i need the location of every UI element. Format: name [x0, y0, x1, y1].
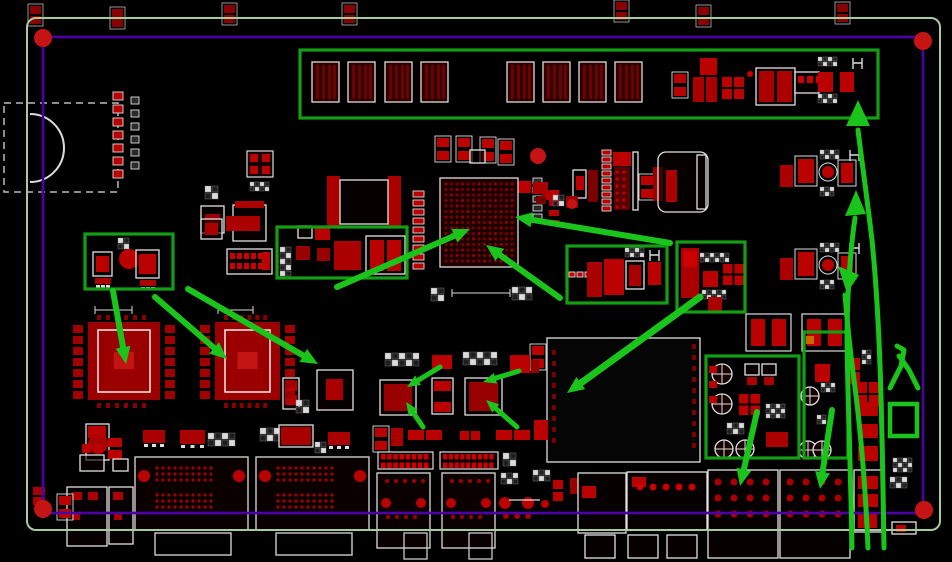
- stripe: [364, 65, 367, 99]
- pin-hole: [450, 479, 454, 483]
- via-grid-cell: [463, 352, 469, 358]
- pad: [734, 77, 744, 87]
- pin-hole: [404, 515, 408, 519]
- red-pad: [840, 72, 854, 92]
- via-grid-cell: [903, 458, 907, 462]
- bga-ball: [472, 221, 475, 224]
- red-pad: [582, 486, 596, 498]
- bga-ball: [461, 183, 464, 186]
- via-grid-cell: [118, 238, 123, 243]
- pad-column-pad: [131, 123, 139, 130]
- bga-ball: [478, 260, 481, 263]
- red-pad: [139, 254, 156, 274]
- pin-top: [263, 315, 267, 320]
- bga-ball: [500, 183, 503, 186]
- pin-hole: [294, 472, 297, 475]
- via-grid-cell: [890, 477, 895, 482]
- pin-hole: [330, 499, 333, 502]
- pad-column-pad: [692, 388, 696, 393]
- red-pad: [496, 430, 512, 440]
- via-grid-cell: [212, 186, 218, 192]
- memory-chip: [312, 62, 339, 102]
- pin-hole: [412, 479, 416, 483]
- bga-ball: [494, 183, 497, 186]
- pad: [250, 154, 258, 162]
- pad-column-pad: [602, 171, 611, 176]
- red-pad: [641, 176, 653, 185]
- qfn-chip: [247, 151, 273, 177]
- pad-column-pad: [413, 218, 424, 224]
- via-grid-cell: [893, 463, 897, 467]
- bga-ball: [450, 205, 453, 208]
- via-grid-cell: [717, 290, 721, 294]
- via-grid-cell: [898, 458, 902, 462]
- stripe: [442, 65, 445, 99]
- bga-ball: [494, 199, 497, 202]
- header-pin: [466, 454, 470, 460]
- pad-column-pad: [552, 394, 556, 399]
- red-pad: [375, 441, 387, 450]
- via-grid-cell: [526, 294, 532, 300]
- via-grid-cell: [722, 295, 726, 299]
- pin-hole: [173, 493, 176, 496]
- mounting-hole: [914, 32, 932, 50]
- via-grid-cell: [826, 388, 830, 392]
- pin-hole: [385, 479, 389, 483]
- via-grid-cell: [625, 253, 629, 257]
- via-grid-cell: [908, 458, 912, 462]
- via-grid-cell: [739, 423, 744, 428]
- pin-left: [73, 380, 83, 388]
- bga-ball: [489, 260, 492, 263]
- red-pad: [806, 336, 814, 344]
- bga-ball: [445, 188, 448, 191]
- pad-column-pad: [108, 450, 122, 459]
- pad-column-pad: [602, 157, 611, 162]
- pin-bottom: [142, 403, 146, 408]
- pin-hole: [288, 493, 291, 496]
- pin-hole: [155, 505, 158, 508]
- bga-ball: [489, 243, 492, 246]
- via-grid-cell: [539, 476, 544, 481]
- red-pad: [534, 420, 548, 440]
- header-pin: [460, 454, 464, 460]
- pin-hole: [312, 505, 315, 508]
- mount-pin: [446, 498, 456, 508]
- pad-column-pad: [413, 209, 424, 215]
- via-grid-cell: [215, 433, 221, 439]
- mount-pin: [416, 498, 426, 508]
- pin-left: [200, 325, 210, 333]
- via-grid-cell: [862, 360, 866, 364]
- via-grid-cell: [406, 353, 412, 359]
- via-grid-cell: [828, 62, 832, 66]
- via-grid-cell: [503, 460, 509, 466]
- pin-bottom: [124, 403, 128, 408]
- bga-ball: [445, 254, 448, 257]
- via-grid-cell: [830, 192, 834, 196]
- pin-hole: [155, 478, 158, 481]
- bga-ball: [483, 183, 486, 186]
- red-pad: [88, 492, 98, 500]
- mounting-hole: [530, 148, 546, 164]
- pad: [262, 166, 270, 174]
- via-grid-cell: [260, 428, 266, 434]
- bga-ball: [445, 243, 448, 246]
- pin-top: [133, 315, 137, 320]
- bga-ball: [472, 199, 475, 202]
- pin-hole: [209, 505, 212, 508]
- bga-ball: [450, 199, 453, 202]
- bga-ball: [478, 205, 481, 208]
- pin-hole: [276, 499, 279, 502]
- bga-ball: [461, 254, 464, 257]
- bga-ball: [500, 205, 503, 208]
- bga-ball: [500, 221, 503, 224]
- pin-hole: [763, 479, 770, 486]
- red-pad: [587, 262, 602, 297]
- red-pad: [143, 430, 165, 443]
- pad-row-pad: [244, 253, 249, 259]
- via-grid-cell: [413, 360, 419, 366]
- bga-ball: [478, 183, 481, 186]
- via-grid-cell: [640, 253, 644, 257]
- pin-hole: [300, 505, 303, 508]
- via-grid-cell: [903, 468, 907, 472]
- bga-ball: [467, 194, 470, 197]
- bga-ball: [461, 199, 464, 202]
- silkscreen-outline: [628, 535, 658, 558]
- pin-left: [73, 369, 83, 377]
- bga-ball: [478, 194, 481, 197]
- stripe: [600, 65, 603, 99]
- stripe: [395, 65, 398, 99]
- via-grid-cell: [833, 99, 837, 103]
- pin-hole: [318, 478, 321, 481]
- via-grid-cell: [766, 409, 770, 413]
- pin-tick: [191, 445, 195, 448]
- red-pad: [514, 430, 530, 440]
- bga-ball: [489, 227, 492, 230]
- pin-hole: [282, 472, 285, 475]
- via-grid-cell: [280, 265, 285, 270]
- pin-bottom: [232, 403, 236, 408]
- pin-tick: [337, 446, 341, 449]
- via-grid-cell: [831, 383, 835, 387]
- pin-hole: [306, 478, 309, 481]
- via-grid-cell: [902, 483, 907, 488]
- bga-ball: [450, 254, 453, 257]
- pin-right: [165, 347, 175, 355]
- via-grid-cell: [820, 187, 824, 191]
- via-grid-cell: [222, 440, 228, 446]
- pad-column-pad: [692, 344, 696, 349]
- via-grid-cell: [828, 99, 832, 103]
- via-grid-cell: [477, 359, 483, 365]
- via-grid-cell: [862, 355, 866, 359]
- stripe: [316, 65, 319, 99]
- pin-hole: [179, 499, 182, 502]
- pin-left: [73, 347, 83, 355]
- bga-ball: [456, 205, 459, 208]
- via-grid-cell: [828, 94, 832, 98]
- pad-column-pad: [131, 149, 139, 156]
- via-grid-cell: [893, 468, 897, 472]
- bga-ball: [467, 210, 470, 213]
- pin-bottom: [115, 403, 119, 408]
- pin-hole: [324, 466, 327, 469]
- bga-ball: [483, 232, 486, 235]
- pin-hole: [288, 505, 291, 508]
- bga-ball: [500, 194, 503, 197]
- pin-right: [165, 336, 175, 344]
- via-grid-cell: [830, 243, 834, 247]
- via-grid-cell: [867, 355, 871, 359]
- pin-hole: [623, 192, 626, 195]
- via-grid-cell: [818, 94, 822, 98]
- via-grid-cell: [823, 57, 827, 61]
- red-pad: [531, 360, 539, 373]
- bga-ball: [505, 249, 508, 252]
- via-grid-cell: [438, 295, 444, 301]
- red-pad: [226, 216, 260, 231]
- pin-hole: [161, 472, 164, 475]
- red-pad: [30, 6, 41, 14]
- pin-hole: [155, 493, 158, 496]
- bga-ball: [489, 194, 492, 197]
- pin-hole: [330, 493, 333, 496]
- bga-ball: [483, 205, 486, 208]
- bga-ball: [450, 210, 453, 213]
- header-pin: [381, 463, 386, 469]
- red-pad: [576, 176, 584, 190]
- header-pin: [412, 463, 417, 469]
- pin-hole: [395, 515, 399, 519]
- red-pad: [296, 246, 310, 260]
- via-grid-cell: [898, 463, 902, 467]
- red-pad: [205, 223, 218, 235]
- bga-ball: [478, 227, 481, 230]
- pin-hole: [185, 472, 188, 475]
- qfp-chip: [73, 315, 175, 408]
- red-pad: [588, 170, 598, 202]
- header-pin: [399, 463, 404, 469]
- bga-ball: [489, 188, 492, 191]
- red-pad: [708, 297, 722, 312]
- via-grid-cell: [817, 415, 821, 419]
- pin-hole: [179, 466, 182, 469]
- pin-hole: [460, 515, 464, 519]
- red-pad: [683, 251, 697, 267]
- pin-hole: [835, 495, 842, 502]
- bga-ball: [456, 243, 459, 246]
- bga-ball: [445, 199, 448, 202]
- bga-ball: [450, 216, 453, 219]
- via-grid-cell: [553, 195, 558, 200]
- three-pin-component: [143, 430, 165, 447]
- header-pin: [449, 454, 453, 460]
- pin-hole: [191, 466, 194, 469]
- via-grid-cell: [229, 433, 235, 439]
- pad-column-pad: [113, 157, 123, 165]
- via-grid-cell: [215, 440, 221, 446]
- via-grid-cell: [818, 99, 822, 103]
- pin-hole: [191, 499, 194, 502]
- pad-row-pad: [251, 253, 256, 259]
- pad-row-pad: [251, 263, 256, 269]
- bga-ball: [450, 188, 453, 191]
- via-grid-cell: [823, 94, 827, 98]
- header-pin: [455, 463, 459, 469]
- silkscreen-outline: [80, 455, 104, 471]
- stripe: [333, 65, 336, 99]
- via-grid-cell: [825, 150, 829, 154]
- via-grid-cell: [835, 155, 839, 159]
- bga-ball: [489, 232, 492, 235]
- pin-hole: [167, 472, 170, 475]
- pin-hole: [663, 484, 670, 491]
- bga-ball: [511, 183, 514, 186]
- bga-ball: [511, 199, 514, 202]
- via-grid-cell: [825, 192, 829, 196]
- usb-connector: [442, 473, 495, 559]
- via-grid-cell: [822, 420, 826, 424]
- pin-top: [106, 315, 110, 320]
- red-pad: [95, 278, 111, 284]
- bga-ball: [500, 210, 503, 213]
- via-grid-cell: [733, 429, 738, 434]
- bga-ball: [456, 249, 459, 252]
- via-grid-cell: [831, 388, 835, 392]
- via-grid-cell: [896, 483, 901, 488]
- pin-hole: [318, 499, 321, 502]
- red-pad: [703, 271, 718, 287]
- via-grid-cell: [739, 429, 744, 434]
- stripe: [528, 65, 531, 99]
- pin-hole: [288, 466, 291, 469]
- pin-hole: [294, 466, 297, 469]
- via-grid-cell: [702, 290, 706, 294]
- pin-hole: [197, 466, 200, 469]
- stripe: [328, 65, 331, 99]
- bga-ball: [450, 221, 453, 224]
- bga-ball: [483, 194, 486, 197]
- via-grid-cell: [510, 460, 516, 466]
- red-pad: [747, 377, 757, 385]
- bga-ball: [511, 188, 514, 191]
- pin-hole: [173, 505, 176, 508]
- red-pad: [326, 379, 343, 400]
- pin-header: [378, 452, 433, 469]
- cap-footprint: [715, 440, 733, 458]
- pin-hole: [288, 499, 291, 502]
- bga-ball: [472, 210, 475, 213]
- pin-hole: [185, 499, 188, 502]
- bga-ball: [494, 205, 497, 208]
- bga-ball: [483, 199, 486, 202]
- red-pad: [706, 77, 717, 102]
- three-pin-component: [95, 278, 111, 288]
- bga-ball: [445, 183, 448, 186]
- via-grid-cell: [491, 359, 497, 365]
- stripe: [636, 65, 639, 99]
- bga-ball: [511, 210, 514, 213]
- stripe: [425, 65, 428, 99]
- via-grid-cell: [715, 258, 719, 262]
- pin-hole: [300, 493, 303, 496]
- pin-hole: [282, 478, 285, 481]
- pin-hole: [191, 493, 194, 496]
- via-grid-cell: [720, 253, 724, 257]
- pin-hole: [650, 484, 657, 491]
- red-pad: [841, 163, 853, 183]
- pad-column-pad: [131, 110, 139, 117]
- stripe: [631, 65, 634, 99]
- via-grid-cell: [828, 57, 832, 61]
- bga-ball: [505, 216, 508, 219]
- via-grid-cell: [286, 271, 291, 276]
- via-grid-cell: [823, 62, 827, 66]
- pin-hole: [173, 472, 176, 475]
- via-grid-cell: [559, 195, 564, 200]
- red-pad: [780, 165, 793, 187]
- bga-ball: [483, 216, 486, 219]
- pad-column-pad: [131, 162, 139, 169]
- silkscreen-outline: [585, 535, 615, 558]
- red-pad: [180, 430, 205, 444]
- bga-ball: [511, 216, 514, 219]
- pad-row-pad: [230, 253, 235, 259]
- pin-right: [285, 391, 295, 399]
- pin-tick: [200, 445, 204, 448]
- header-pin: [418, 454, 423, 460]
- bga-ball: [489, 205, 492, 208]
- pin-hole: [185, 505, 188, 508]
- memory-chip: [579, 62, 606, 102]
- via-grid-cell: [825, 187, 829, 191]
- pin-hole: [676, 484, 683, 491]
- pin-hole: [763, 495, 770, 502]
- via-grid-cell: [821, 383, 825, 387]
- via-grid-cell: [118, 244, 123, 249]
- bga-ball: [494, 221, 497, 224]
- pin-bottom: [255, 403, 259, 408]
- via-grid-cell: [830, 285, 834, 289]
- round-pad: [747, 71, 753, 77]
- memory-chip: [348, 62, 375, 102]
- pin-left: [200, 391, 210, 399]
- red-pad: [700, 58, 717, 75]
- via-grid-cell: [491, 352, 497, 358]
- bga-ball: [489, 199, 492, 202]
- via-grid-cell: [725, 258, 729, 262]
- pad-column-pad: [692, 366, 696, 371]
- pin-hole: [637, 484, 644, 491]
- pin-hole: [394, 479, 398, 483]
- pin-hole: [209, 478, 212, 481]
- pin-hole: [191, 472, 194, 475]
- bga-ball: [478, 221, 481, 224]
- pin-hole: [294, 478, 297, 481]
- pad-column-pad: [413, 263, 424, 269]
- red-pad: [698, 7, 709, 15]
- bga-ball: [450, 194, 453, 197]
- bga-ball: [450, 243, 453, 246]
- via-grid-cell: [205, 193, 211, 199]
- via-grid-cell: [830, 280, 834, 284]
- bga-ball: [511, 238, 514, 241]
- via-grid-cell: [817, 420, 821, 424]
